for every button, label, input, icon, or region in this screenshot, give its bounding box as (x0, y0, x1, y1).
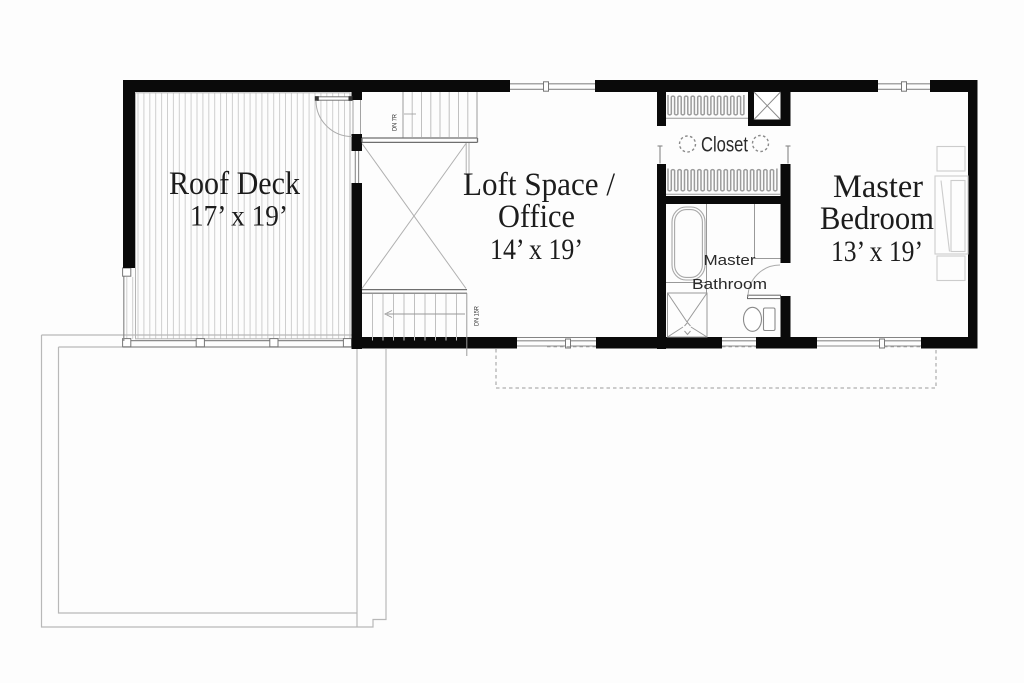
svg-text:Loft Space /: Loft Space / (463, 167, 616, 203)
svg-text:13’ x 19’: 13’ x 19’ (831, 235, 923, 268)
svg-text:Office: Office (498, 199, 575, 235)
svg-text:Roof Deck: Roof Deck (169, 166, 300, 202)
svg-text:Bathroom: Bathroom (692, 277, 767, 293)
svg-text:DN 7R: DN 7R (393, 113, 399, 131)
svg-text:Master: Master (833, 169, 923, 205)
svg-text:DN 15R: DN 15R (475, 305, 481, 326)
svg-text:14’ x 19’: 14’ x 19’ (490, 233, 583, 266)
svg-text:Closet: Closet (701, 134, 748, 157)
svg-text:17’ x 19’: 17’ x 19’ (190, 200, 288, 233)
svg-text:Bedroom: Bedroom (820, 201, 934, 237)
svg-text:Master: Master (704, 253, 756, 269)
